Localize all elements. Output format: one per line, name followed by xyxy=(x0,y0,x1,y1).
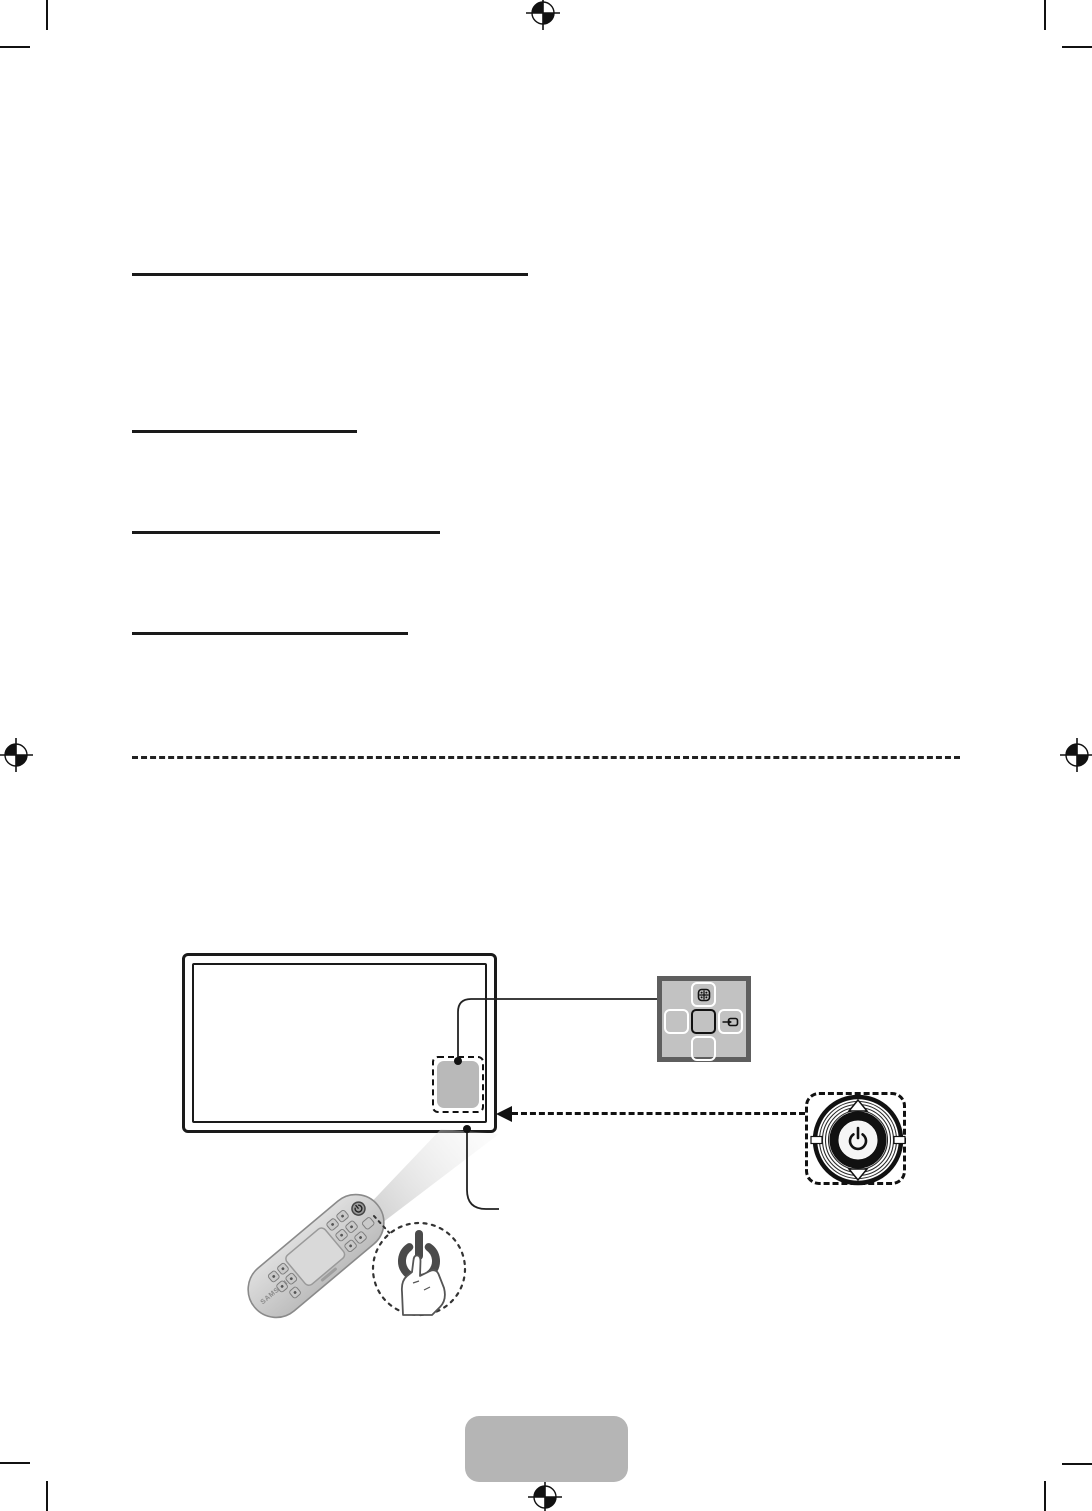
registration-mark-icon xyxy=(1057,735,1092,775)
crop-mark-bottom-left-v xyxy=(46,1481,48,1511)
crop-mark-bottom-left-h xyxy=(0,1462,30,1464)
pad-button-up xyxy=(691,982,716,1007)
remote-brand-label: SAMSUNG xyxy=(260,1275,295,1306)
crop-mark-top-right-v xyxy=(1044,0,1046,30)
menu-icon xyxy=(697,988,711,1002)
magnifier-circle xyxy=(373,1223,465,1315)
hand-icon xyxy=(402,1255,445,1315)
crop-mark-top-left-h xyxy=(0,46,30,48)
page: SAMSUNG xyxy=(0,0,1092,1511)
remote-touchpad xyxy=(284,1226,347,1287)
registration-mark-icon xyxy=(525,1477,565,1511)
remote-lower-buttons xyxy=(267,1262,306,1302)
ir-sensor-panel xyxy=(437,1061,479,1108)
section-divider xyxy=(132,756,960,759)
crop-mark-top-left-v xyxy=(46,0,48,30)
heading-rule-3 xyxy=(132,531,440,534)
bottom-page-badge xyxy=(465,1416,628,1482)
power-symbol-icon xyxy=(402,1234,436,1278)
pad-button-down xyxy=(691,1036,716,1061)
remote-power-button xyxy=(349,1199,378,1230)
registration-mark-icon xyxy=(0,735,36,775)
power-dial-dashed-box xyxy=(805,1092,906,1185)
source-icon xyxy=(722,1016,739,1028)
remote-touchpad-label xyxy=(320,1267,337,1282)
magnifier-leader-line xyxy=(374,1216,394,1238)
crop-mark-top-right-h xyxy=(1062,46,1092,48)
connector-line-sensor xyxy=(463,1125,499,1209)
controller-pad-diagram xyxy=(657,976,751,1062)
pad-button-left xyxy=(664,1009,689,1034)
remote-beam xyxy=(362,1129,499,1226)
remote-upper-buttons xyxy=(326,1209,367,1252)
heading-rule-1 xyxy=(132,273,528,276)
registration-mark-icon xyxy=(523,0,563,33)
heading-rule-2 xyxy=(132,430,357,433)
remote-control: SAMSUNG xyxy=(237,1183,396,1329)
pad-button-center xyxy=(691,1009,716,1034)
dashed-arrow-line xyxy=(512,1112,805,1115)
heading-rule-4 xyxy=(132,632,408,635)
pad-button-right xyxy=(718,1009,743,1034)
crop-mark-bottom-right-h xyxy=(1062,1463,1092,1465)
crop-mark-bottom-right-v xyxy=(1044,1481,1046,1511)
dashed-arrow-head xyxy=(496,1106,512,1122)
